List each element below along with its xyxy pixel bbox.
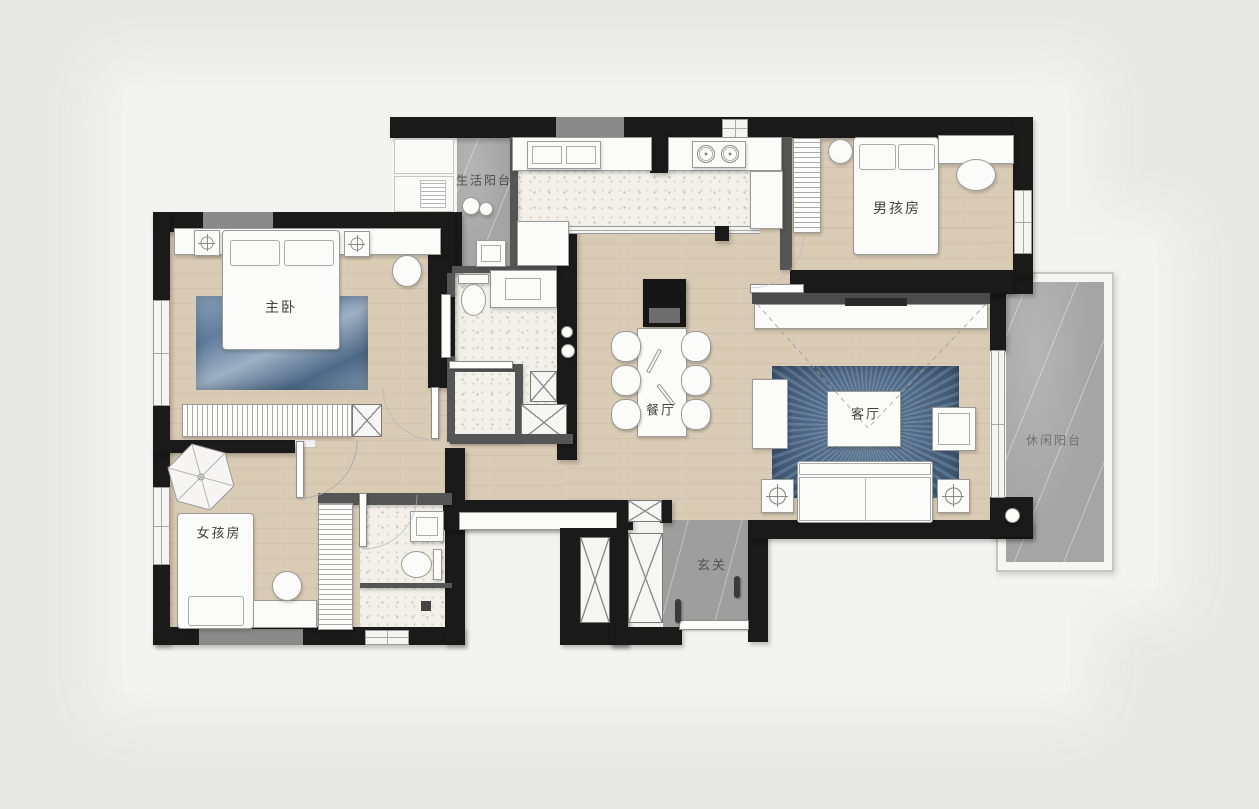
- girls-bed-blanket: [188, 596, 244, 626]
- floor-shower: [455, 372, 515, 434]
- living-cabinet-left: [752, 379, 788, 449]
- girls-shower-drain: [421, 601, 431, 611]
- window-top-notch: [722, 119, 748, 138]
- laundry-appliance-top: [394, 139, 454, 174]
- window-master-left: [153, 300, 170, 406]
- bath-sliding-door: [441, 294, 451, 358]
- dining-chair: [681, 331, 711, 362]
- bath-toilet-tank: [458, 274, 489, 284]
- entry-door-leaf: [679, 620, 749, 630]
- wall-master-girls: [153, 440, 295, 453]
- wall-entry-bottom: [610, 627, 682, 645]
- girls-bath-sink-basin: [416, 517, 438, 536]
- duct-master: [352, 404, 382, 437]
- label-master-bedroom: 主卧: [265, 297, 297, 317]
- sink-basin-left: [532, 146, 562, 164]
- dining-chair: [611, 365, 641, 396]
- living-lamp-table-left: [761, 479, 794, 513]
- boys-wardrobe: [793, 138, 821, 233]
- boys-chair: [956, 159, 996, 191]
- boys-pillow-left: [859, 144, 896, 170]
- entry-door-handle-left: [675, 599, 681, 623]
- window-girls-bath: [365, 630, 409, 645]
- foyer-shoe-cabinet-small: [628, 500, 662, 522]
- wall-bath-south: [450, 434, 573, 444]
- label-girls-room: 女孩房: [196, 523, 241, 542]
- stove-burner-left: [697, 145, 715, 163]
- kitchen-counter-leg: [750, 171, 783, 229]
- entry-door-handle-right: [734, 576, 740, 598]
- kitchen-track-nib: [715, 226, 729, 241]
- kitchen-sliding-track: [565, 226, 760, 234]
- girls-toilet-bowl: [401, 551, 432, 578]
- master-door-leaf: [431, 387, 439, 439]
- floor-plan-canvas: 生活阳台 男孩房 主卧 餐厅 客厅 休闲阳台 女孩房 玄关: [0, 0, 1259, 809]
- girls-shower-partition: [360, 583, 452, 588]
- girls-chair: [272, 571, 302, 601]
- wall-living-east: [990, 293, 1006, 351]
- window-boys-east: [1014, 190, 1032, 254]
- sink-basin-right: [566, 146, 596, 164]
- dining-chair: [681, 399, 711, 430]
- foyer-shoe-cabinet-tall: [628, 533, 663, 623]
- sofa-backrest: [799, 463, 931, 475]
- shower-sliding-door: [449, 361, 513, 369]
- wall-left: [153, 212, 170, 645]
- girls-wardrobe: [318, 503, 353, 630]
- laundry-washer-hatch: [420, 180, 446, 208]
- dining-chair: [681, 365, 711, 396]
- label-laundry-balcony: 生活阳台: [456, 172, 512, 189]
- dining-chair: [611, 331, 641, 362]
- window-girls-left: [153, 487, 170, 565]
- master-pillow-left: [230, 240, 280, 266]
- master-chair: [392, 255, 422, 287]
- living-tv-cabinet: [754, 304, 988, 329]
- master-nightstand-right: [344, 231, 370, 257]
- sofa-seat-split: [865, 477, 866, 521]
- window-bottom: [199, 629, 303, 645]
- bath-wall-dot-large: [561, 344, 575, 358]
- wall-top: [390, 117, 1013, 138]
- laundry-stool-small: [479, 202, 493, 216]
- boys-pillow-right: [898, 144, 935, 170]
- living-lamp-table-right: [937, 479, 970, 513]
- stove-burner-right: [721, 145, 739, 163]
- living-tv: [845, 298, 907, 306]
- bath-vanity-basin: [505, 278, 541, 300]
- boys-side-table: [828, 139, 853, 164]
- balcony-door-pivot: [1005, 508, 1020, 523]
- girls-bath-door-leaf: [359, 493, 367, 547]
- girls-bench: [253, 600, 317, 628]
- living-side-table-inner: [938, 413, 970, 445]
- wall-kitchen-joint: [650, 131, 668, 173]
- master-nightstand-left: [194, 230, 220, 256]
- wall-girlsbath-east: [445, 448, 465, 645]
- dining-table: [637, 328, 687, 437]
- duct-entry: [580, 537, 610, 623]
- master-wardrobe: [182, 404, 352, 437]
- label-dining-room: 餐厅: [646, 400, 676, 419]
- label-boys-room: 男孩房: [873, 198, 921, 218]
- laundry-sink-basin: [481, 245, 501, 262]
- label-foyer: 玄关: [697, 555, 727, 574]
- label-living-room: 客厅: [851, 404, 881, 423]
- window-top: [556, 117, 624, 138]
- master-pillow-right: [284, 240, 334, 266]
- label-leisure-balcony: 休闲阳台: [1026, 432, 1082, 449]
- bath-toilet-bowl: [461, 284, 486, 316]
- kitchen-tall-cabinet: [517, 221, 569, 266]
- bath-wall-dot-small: [561, 326, 573, 338]
- girls-door-leaf: [296, 441, 304, 498]
- dining-chair: [611, 399, 641, 430]
- dining-island-shelf: [649, 308, 680, 323]
- wall-boys-south: [790, 270, 1013, 293]
- girls-toilet-tank: [433, 549, 442, 580]
- laundry-stool-large: [462, 197, 480, 215]
- boys-door-leaf: [750, 284, 804, 293]
- window-living-east: [991, 350, 1005, 498]
- duct-bath-small: [530, 371, 557, 402]
